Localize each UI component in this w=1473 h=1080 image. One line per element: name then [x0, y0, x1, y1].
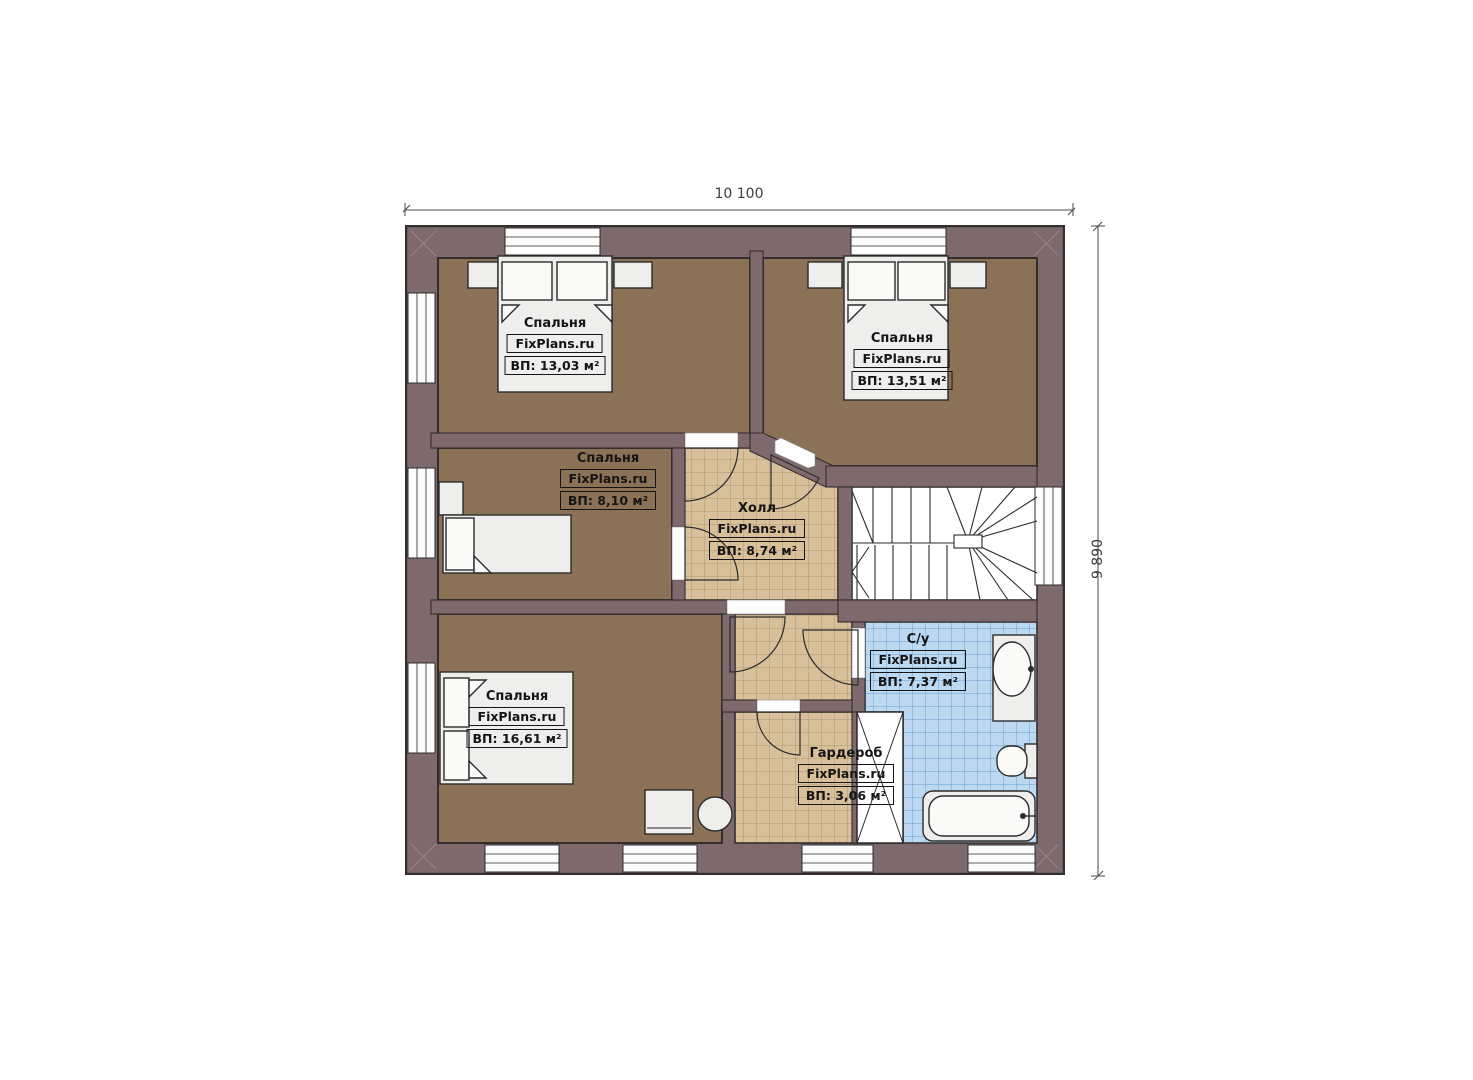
room-name: Гардероб [798, 746, 894, 761]
room-area: ВП: 13,03 м² [505, 356, 606, 375]
window [408, 293, 435, 383]
nightstand [468, 262, 498, 288]
room-label-bathroom: С/у FixPlans.ru ВП: 7,37 м² [870, 632, 966, 691]
dimension-top: 10 100 [403, 186, 1075, 216]
room-label-wardrobe: Гардероб FixPlans.ru ВП: 3,06 м² [798, 746, 894, 805]
pillow [848, 262, 895, 300]
pillow [444, 731, 469, 780]
room-name: Спальня [467, 689, 568, 704]
window [485, 845, 559, 872]
window [623, 845, 697, 872]
floor-plan: Спальня FixPlans.ru ВП: 13,03 м² Спальня… [405, 225, 1065, 875]
room-label-bedroom-bottom-left: Спальня FixPlans.ru ВП: 16,61 м² [467, 689, 568, 748]
pillow [502, 262, 552, 300]
window [1035, 487, 1062, 585]
watermark: FixPlans.ru [854, 349, 950, 368]
nightstand [808, 262, 842, 288]
room-label-bedroom-top-right: Спальня FixPlans.ru ВП: 13,51 м² [852, 331, 953, 390]
dimension-right: 9 890 [1082, 222, 1116, 880]
pillow [444, 678, 469, 727]
bathtub-inner [929, 796, 1029, 836]
room-area: ВП: 16,61 м² [467, 729, 568, 748]
room-area: ВП: 3,06 м² [798, 786, 894, 805]
pillow [557, 262, 607, 300]
room-label-hall: Холл FixPlans.ru ВП: 8,74 м² [709, 501, 805, 560]
watermark: FixPlans.ru [507, 334, 603, 353]
room-area: ВП: 8,10 м² [560, 491, 656, 510]
room-name: Холл [709, 501, 805, 516]
window [802, 845, 873, 872]
room-floor-corridor [735, 614, 852, 712]
watermark: FixPlans.ru [798, 764, 894, 783]
desk [645, 790, 693, 834]
cabinet [439, 482, 463, 515]
dimension-right-label: 9 890 [1090, 539, 1106, 579]
room-label-bedroom-middle-left: Спальня FixPlans.ru ВП: 8,10 м² [560, 451, 656, 510]
room-name: Спальня [560, 451, 656, 466]
window [968, 845, 1035, 872]
stool [698, 797, 732, 831]
room-name: Спальня [505, 316, 606, 331]
watermark: FixPlans.ru [560, 469, 656, 488]
window [408, 468, 435, 558]
watermark: FixPlans.ru [870, 650, 966, 669]
nightstand [614, 262, 652, 288]
room-area: ВП: 8,74 м² [709, 541, 805, 560]
window [408, 663, 435, 753]
bathtub-drain [1020, 813, 1026, 819]
faucet [1028, 666, 1034, 672]
pillow [446, 518, 474, 570]
floor-plan-canvas: 10 100 9 890 [0, 0, 1473, 1080]
sink [993, 642, 1031, 696]
room-name: С/у [870, 632, 966, 647]
room-label-bedroom-top-left: Спальня FixPlans.ru ВП: 13,03 м² [505, 316, 606, 375]
room-area: ВП: 13,51 м² [852, 371, 953, 390]
window [851, 228, 946, 255]
toilet-bowl [997, 746, 1027, 776]
pillow [898, 262, 945, 300]
watermark: FixPlans.ru [709, 519, 805, 538]
nightstand [950, 262, 986, 288]
room-name: Спальня [852, 331, 953, 346]
window [505, 228, 600, 255]
dimension-top-label: 10 100 [715, 186, 764, 202]
room-area: ВП: 7,37 м² [870, 672, 966, 691]
watermark: FixPlans.ru [469, 707, 565, 726]
